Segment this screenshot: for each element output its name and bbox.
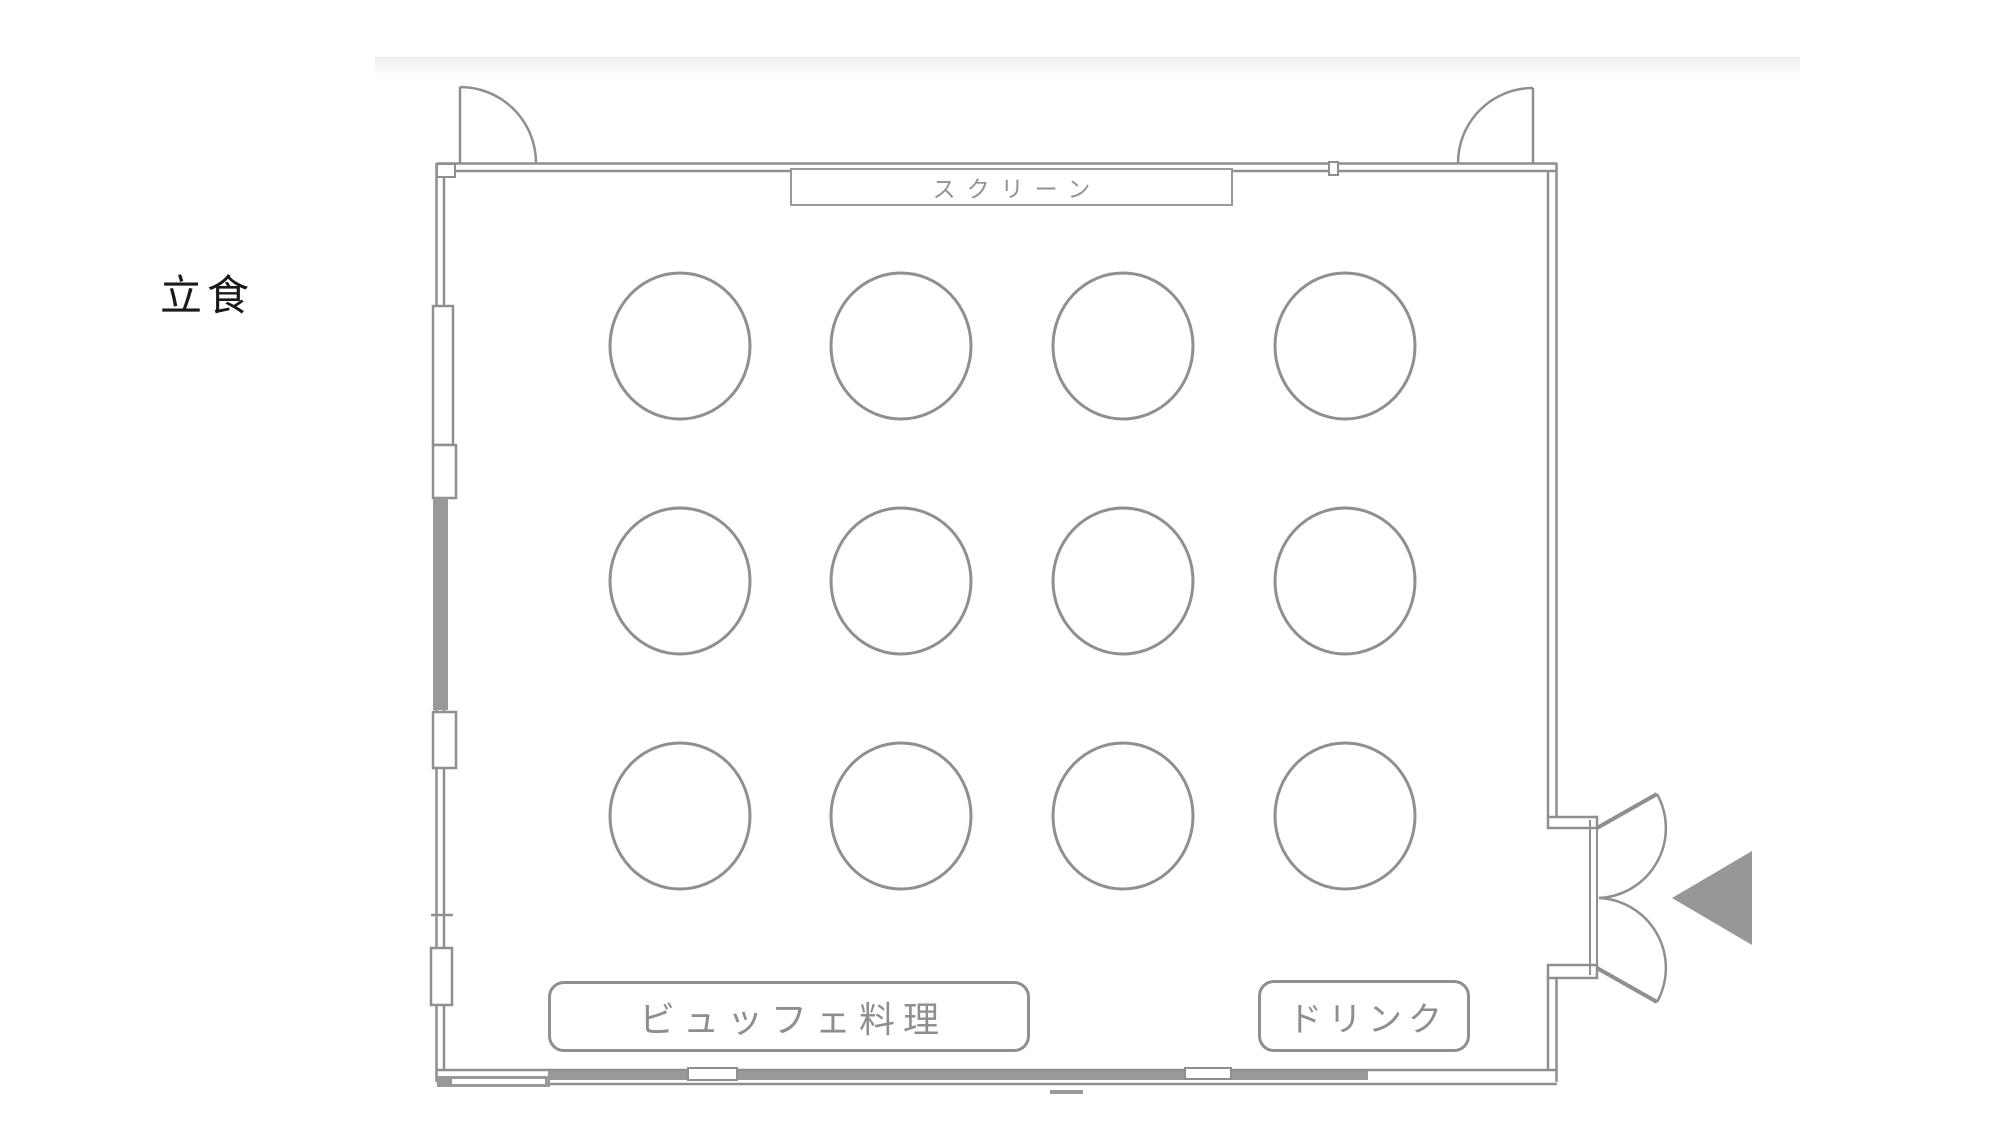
- banquet-table: [831, 273, 971, 419]
- screen-label: スクリーン: [922, 170, 1102, 204]
- banquet-table: [1275, 743, 1415, 889]
- banquet-table: [1275, 508, 1415, 654]
- door-top-right-icon: [1458, 88, 1533, 163]
- buffet-table-box: ビュッフェ料理: [548, 981, 1030, 1052]
- event-type-label: 立食: [160, 262, 254, 323]
- banquet-table: [610, 743, 750, 889]
- entrance-arrow-icon: [1672, 851, 1752, 945]
- banquet-table: [610, 508, 750, 654]
- banquet-table: [610, 273, 750, 419]
- drink-table-box: ドリンク: [1258, 980, 1470, 1052]
- door-top-left-icon: [460, 87, 536, 163]
- banquet-table: [831, 743, 971, 889]
- banquet-table: [1053, 508, 1193, 654]
- banquet-table: [831, 508, 971, 654]
- door-right-double-icon: [1548, 794, 1666, 1002]
- drink-table-label: ドリンク: [1280, 992, 1448, 1041]
- banquet-table: [1053, 273, 1193, 419]
- banquet-table: [1275, 273, 1415, 419]
- screen-box: スクリーン: [790, 168, 1233, 206]
- banquet-table: [1053, 743, 1193, 889]
- floor-plan-page: 立食 スクリーン ビュッフェ料理 ドリンク: [0, 0, 2000, 1125]
- banquet-tables: [610, 273, 1415, 889]
- buffet-table-label: ビュッフェ料理: [631, 991, 947, 1043]
